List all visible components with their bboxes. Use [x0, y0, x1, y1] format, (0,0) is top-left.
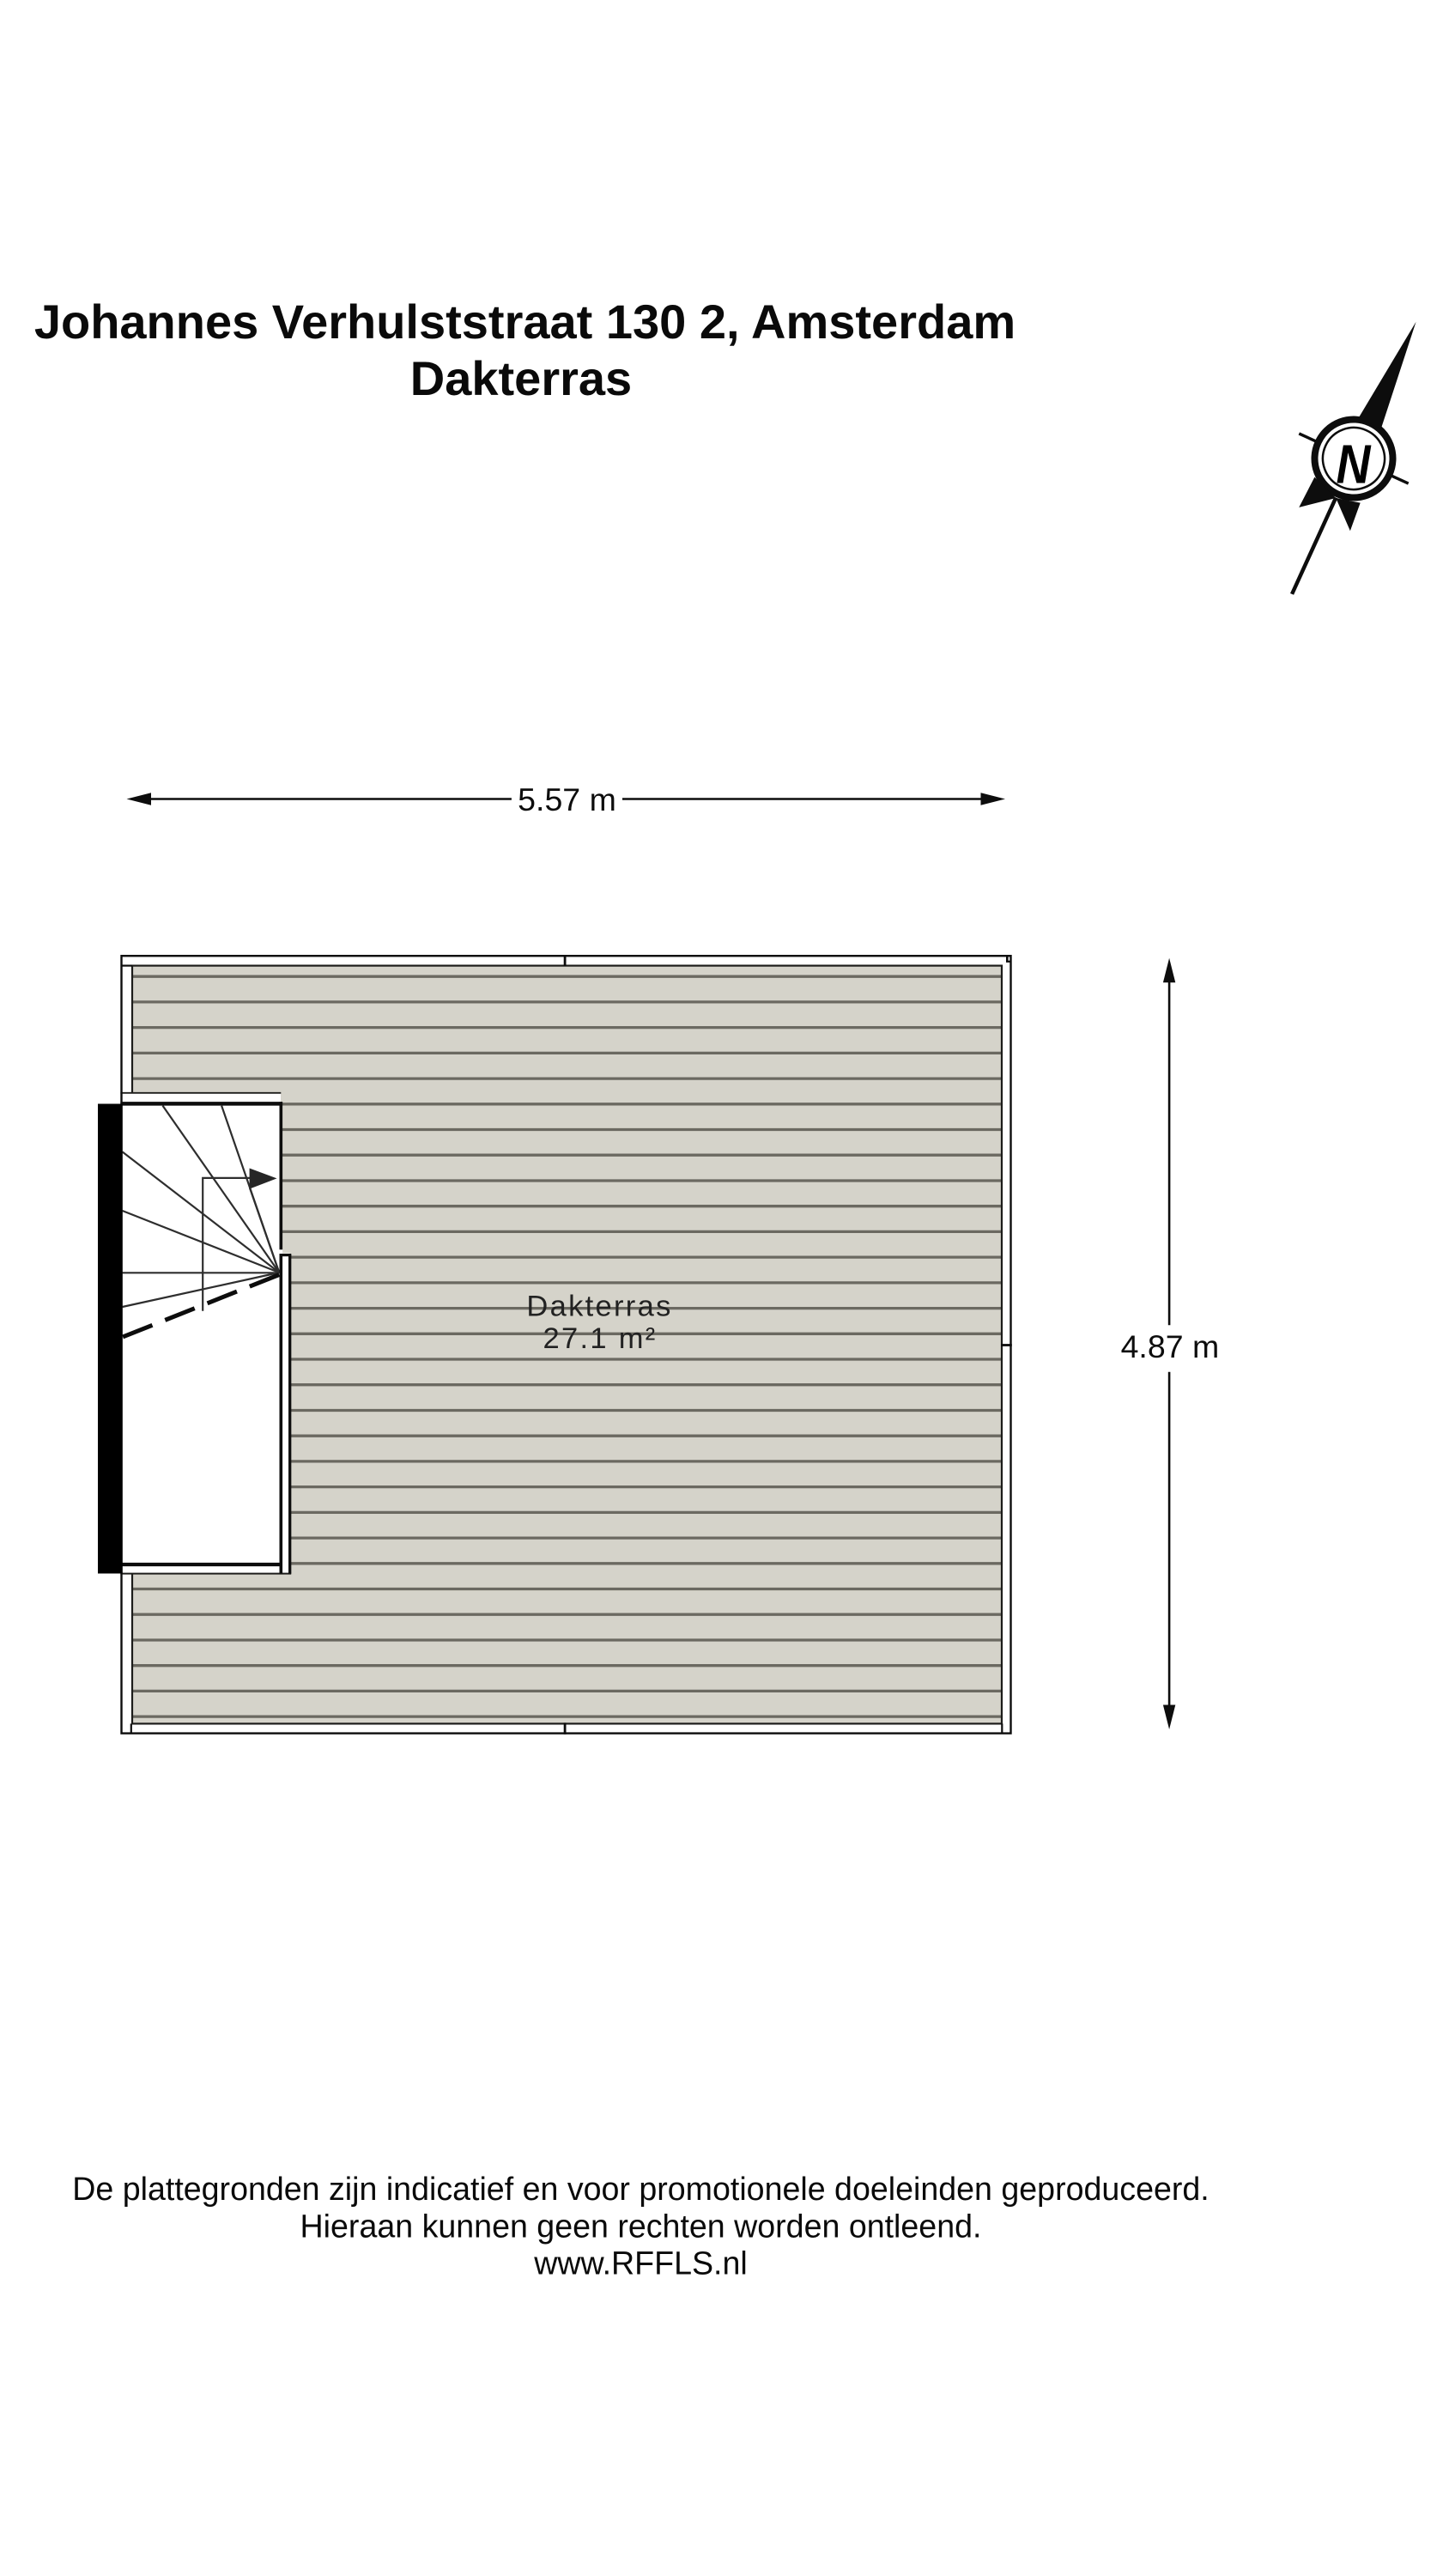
- svg-text:27.1 m²: 27.1 m²: [543, 1322, 657, 1355]
- svg-text:www.RFFLS.nl: www.RFFLS.nl: [533, 2245, 747, 2281]
- svg-text:4.87 m: 4.87 m: [1121, 1328, 1220, 1364]
- svg-text:De plattegronden zijn indicati: De plattegronden zijn indicatief en voor…: [72, 2171, 1209, 2207]
- svg-text:Hieraan kunnen geen rechten wo: Hieraan kunnen geen rechten worden ontle…: [300, 2208, 982, 2244]
- svg-text:Johannes Verhulststraat 130 2,: Johannes Verhulststraat 130 2, Amsterdam: [34, 295, 1016, 349]
- svg-text:N: N: [1337, 434, 1373, 495]
- svg-text:Dakterras: Dakterras: [410, 351, 632, 405]
- svg-text:Dakterras: Dakterras: [526, 1291, 672, 1323]
- svg-text:5.57 m: 5.57 m: [518, 781, 616, 817]
